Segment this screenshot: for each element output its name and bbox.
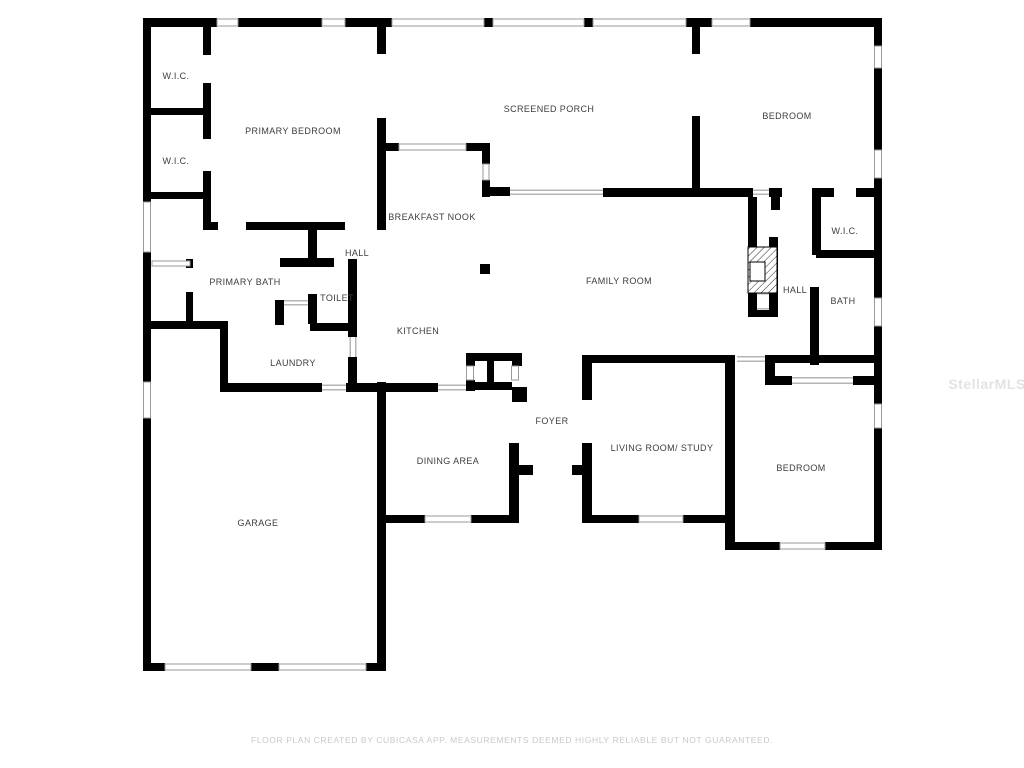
room-label-bedroom-top: BEDROOM bbox=[762, 111, 811, 121]
room-label-wic-lower: W.I.C. bbox=[163, 156, 190, 166]
floor-plan-drawing bbox=[0, 0, 1024, 768]
room-label-wic-upper: W.I.C. bbox=[163, 71, 190, 81]
room-label-foyer: FOYER bbox=[535, 416, 568, 426]
kitchen-island-post bbox=[480, 264, 490, 274]
room-label-garage: GARAGE bbox=[238, 518, 279, 528]
room-label-hall-right: HALL bbox=[783, 285, 807, 295]
stellar-mls-watermark: StellarMLS bbox=[948, 376, 1024, 392]
room-label-dining-area: DINING AREA bbox=[417, 456, 479, 466]
footer-disclaimer: FLOOR PLAN CREATED BY CUBICASA APP. MEAS… bbox=[251, 735, 773, 745]
room-label-kitchen: KITCHEN bbox=[397, 326, 439, 336]
floor-plan-page: W.I.C. W.I.C. PRIMARY BEDROOM SCREENED P… bbox=[0, 0, 1024, 768]
room-label-bedroom-bottom: BEDROOM bbox=[776, 463, 825, 473]
room-label-breakfast-nook: BREAKFAST NOOK bbox=[388, 212, 475, 222]
room-label-family-room: FAMILY ROOM bbox=[586, 276, 652, 286]
room-label-hall-upper: HALL bbox=[345, 248, 369, 258]
fireplace-icon bbox=[748, 247, 777, 293]
room-label-wic-right: W.I.C. bbox=[832, 226, 859, 236]
room-label-primary-bath: PRIMARY BATH bbox=[209, 277, 280, 287]
room-label-living-room-study: LIVING ROOM/ STUDY bbox=[611, 443, 714, 453]
room-label-toilet: TOILET bbox=[320, 293, 354, 303]
room-label-primary-bedroom: PRIMARY BEDROOM bbox=[245, 126, 341, 136]
room-label-screened-porch: SCREENED PORCH bbox=[504, 104, 595, 114]
room-label-bath-right: BATH bbox=[831, 296, 856, 306]
room-label-laundry: LAUNDRY bbox=[270, 358, 316, 368]
